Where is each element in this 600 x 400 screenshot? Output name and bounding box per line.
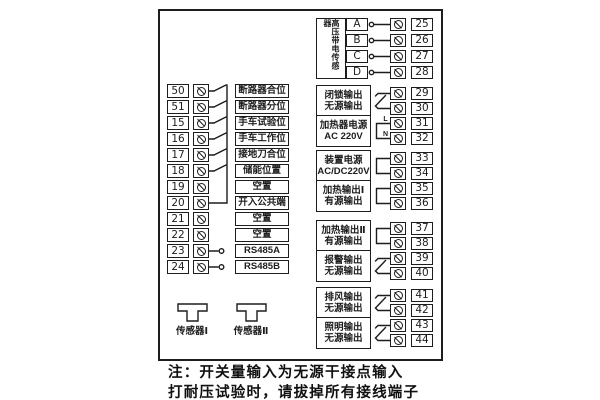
screw-terminal-icon [394, 68, 403, 77]
terminal-wiring-diagram: LN 注：开关量输入为无源干接点输入 打耐压试验时，请拔掉所有接线端子 50断路… [0, 0, 600, 400]
wire [376, 259, 391, 262]
terminal-number-box: 30 [411, 102, 433, 115]
wire-label-L: L [383, 116, 388, 123]
terminal-number-box: 29 [411, 87, 433, 100]
terminal-screw [390, 267, 406, 280]
screw-terminal-icon [197, 199, 206, 208]
screw-terminal-icon [394, 52, 403, 61]
terminal-number-box: 28 [411, 66, 433, 79]
terminal-number-box: 19 [167, 180, 189, 194]
hv-channel-box: D [346, 66, 368, 79]
terminal-screw [390, 222, 406, 235]
screw-terminal-icon [394, 134, 403, 143]
terminal-screw [193, 212, 209, 226]
connector-dot-icon [369, 54, 373, 58]
terminal-screw [390, 18, 406, 31]
output-label-box: 闭锁输出无源输出 [316, 85, 371, 117]
screw-terminal-icon [394, 184, 403, 193]
input-function-label: RS485A [235, 244, 289, 258]
screw-terminal-icon [394, 306, 403, 315]
wire [376, 338, 391, 341]
connector-dot-icon [369, 70, 373, 74]
terminal-screw [390, 102, 406, 115]
relay-contact-icon [376, 96, 386, 107]
terminal-number-box: 25 [411, 18, 433, 31]
terminal-number-box: 39 [411, 252, 433, 265]
terminal-screw [390, 66, 406, 79]
terminal-screw [390, 117, 406, 130]
terminal-number-box: 33 [411, 152, 433, 165]
terminal-screw [193, 196, 209, 210]
screw-terminal-icon [197, 263, 206, 272]
relay-contact-icon [376, 328, 386, 339]
wire [376, 271, 391, 274]
terminal-screw [390, 197, 406, 210]
hv-sensor-label: 高压带电传感器 [316, 18, 346, 79]
output-label-box: 加热输出Ⅱ有源输出 [316, 220, 371, 252]
sensor-connector-icon [178, 304, 207, 321]
switch-contact-icon [214, 101, 226, 107]
screw-terminal-icon [394, 321, 403, 330]
screw-terminal-icon [394, 336, 403, 345]
output-label-line: 排风输出 [324, 293, 362, 303]
terminal-screw [390, 289, 406, 302]
wire [376, 106, 391, 109]
output-label-line: AC 220V [324, 132, 363, 142]
terminal-screw [193, 260, 209, 274]
terminal-number-box: 20 [167, 196, 189, 210]
output-label-line: 闭锁输出 [324, 91, 362, 101]
output-label-line: AC/DC220V [317, 167, 369, 177]
screw-terminal-icon [394, 89, 403, 98]
input-function-label: RS485B [235, 260, 289, 274]
terminal-number-box: 36 [411, 197, 433, 210]
power-link-icon [377, 229, 391, 244]
wiring-layer: LN [0, 0, 600, 400]
screw-terminal-icon [394, 20, 403, 29]
terminal-number-box: 23 [167, 244, 189, 258]
screw-terminal-icon [394, 119, 403, 128]
relay-contact-icon [376, 298, 386, 309]
terminal-screw [193, 84, 209, 98]
switch-contact-icon [214, 85, 226, 91]
terminal-screw [193, 180, 209, 194]
terminal-screw [193, 164, 209, 178]
wire [376, 94, 391, 97]
output-label-box: 加热器电源AC 220V [316, 115, 371, 147]
note-line-1: 注：开关量输入为无源干接点输入 [168, 361, 404, 382]
terminal-screw [193, 132, 209, 146]
input-function-label: 手车工作位 [235, 132, 289, 146]
terminal-screw [390, 182, 406, 195]
wire [376, 308, 391, 311]
terminal-number-box: 16 [167, 132, 189, 146]
input-function-label: 储能位置 [235, 164, 289, 178]
power-link-icon [377, 189, 391, 204]
output-label-line: 有源输出 [324, 197, 362, 207]
screw-terminal-icon [394, 169, 403, 178]
screw-terminal-icon [394, 291, 403, 300]
wire [376, 296, 391, 299]
terminal-screw [390, 334, 406, 347]
terminal-screw [193, 148, 209, 162]
terminal-number-box: 51 [167, 100, 189, 114]
relay-contact-icon [376, 261, 386, 272]
switch-contact-icon [214, 133, 226, 139]
switch-contact-icon [214, 165, 226, 171]
output-label-line: 装置电源 [324, 156, 362, 166]
screw-terminal-icon [197, 247, 206, 256]
input-function-label: 手车试验位 [235, 116, 289, 130]
terminal-number-box: 18 [167, 164, 189, 178]
screw-terminal-icon [394, 104, 403, 113]
hv-channel-box: C [346, 50, 368, 63]
screw-terminal-icon [394, 154, 403, 163]
terminal-number-box: 26 [411, 34, 433, 47]
output-label-box: 照明输出无源输出 [316, 317, 371, 349]
output-label-box: 排风输出无源输出 [316, 287, 371, 319]
output-label-box: 报警输出无源输出 [316, 250, 371, 282]
output-label-box: 加热输出Ⅰ有源输出 [316, 180, 371, 212]
terminal-number-box: 41 [411, 289, 433, 302]
screw-terminal-icon [197, 87, 206, 96]
terminal-screw [390, 319, 406, 332]
terminal-number-box: 31 [411, 117, 433, 130]
screw-terminal-icon [394, 36, 403, 45]
input-function-label: 空置 [235, 180, 289, 194]
hv-channel-box: A [346, 18, 368, 31]
switch-contact-icon [214, 149, 226, 155]
terminal-screw [390, 237, 406, 250]
terminal-number-box: 22 [167, 228, 189, 242]
output-label-line: 无源输出 [324, 102, 362, 112]
terminal-screw [390, 87, 406, 100]
terminal-number-box: 37 [411, 222, 433, 235]
terminal-screw [390, 152, 406, 165]
terminal-number-box: 50 [167, 84, 189, 98]
screw-terminal-icon [197, 231, 206, 240]
connector-dot-icon [219, 265, 224, 270]
terminal-number-box: 40 [411, 267, 433, 280]
input-function-label: 空置 [235, 212, 289, 226]
screw-terminal-icon [394, 239, 403, 248]
screw-terminal-icon [197, 135, 206, 144]
screw-terminal-icon [394, 224, 403, 233]
terminal-screw [193, 228, 209, 242]
input-function-label: 开入公共端 [235, 196, 289, 210]
terminal-number-box: 21 [167, 212, 189, 226]
input-function-label: 空置 [235, 228, 289, 242]
output-label-line: 加热输出Ⅰ [323, 186, 365, 196]
screw-terminal-icon [394, 254, 403, 263]
terminal-number-box: 43 [411, 319, 433, 332]
terminal-number-box: 27 [411, 50, 433, 63]
output-label-line: 无源输出 [324, 267, 362, 277]
switch-contact-icon [214, 117, 226, 123]
connector-dot-icon [369, 38, 373, 42]
input-function-label: 断路器合位 [235, 84, 289, 98]
terminal-screw [193, 116, 209, 130]
terminal-screw [193, 244, 209, 258]
terminal-number-box: 17 [167, 148, 189, 162]
terminal-number-box: 35 [411, 182, 433, 195]
output-label-line: 加热输出Ⅱ [321, 226, 365, 236]
terminal-number-box: 24 [167, 260, 189, 274]
screw-terminal-icon [197, 215, 206, 224]
terminal-number-box: 32 [411, 132, 433, 145]
terminal-number-box: 44 [411, 334, 433, 347]
output-label-line: 报警输出 [324, 256, 362, 266]
terminal-screw [390, 50, 406, 63]
terminal-number-box: 15 [167, 116, 189, 130]
output-label-line: 照明输出 [324, 323, 362, 333]
terminal-screw [390, 304, 406, 317]
sensor-label: 传感器Ⅰ [164, 327, 220, 337]
terminal-screw [390, 132, 406, 145]
note-line-2: 打耐压试验时，请拔掉所有接线端子 [168, 381, 419, 400]
output-label-line: 加热器电源 [320, 121, 368, 131]
power-link-icon [377, 159, 391, 174]
terminal-screw [390, 167, 406, 180]
output-label-line: 无源输出 [324, 334, 362, 344]
screw-terminal-icon [394, 199, 403, 208]
screw-terminal-icon [197, 151, 206, 160]
screw-terminal-icon [197, 119, 206, 128]
terminal-number-box: 38 [411, 237, 433, 250]
wire [376, 326, 391, 329]
output-label-line: 有源输出 [324, 237, 362, 247]
screw-terminal-icon [197, 167, 206, 176]
screw-terminal-icon [394, 269, 403, 278]
screw-terminal-icon [197, 103, 206, 112]
terminal-screw [390, 252, 406, 265]
screw-terminal-icon [197, 183, 206, 192]
sensor-label: 传感器Ⅱ [223, 327, 279, 337]
terminal-number-box: 42 [411, 304, 433, 317]
output-label-box: 装置电源AC/DC220V [316, 150, 371, 182]
connector-dot-icon [219, 249, 224, 254]
wire-label-N: N [383, 131, 388, 138]
output-label-line: 无源输出 [324, 304, 362, 314]
terminal-screw [390, 34, 406, 47]
terminal-number-box: 34 [411, 167, 433, 180]
connector-dot-icon [369, 22, 373, 26]
input-function-label: 断路器分位 [235, 100, 289, 114]
hv-channel-box: B [346, 34, 368, 47]
input-function-label: 接地刀合位 [235, 148, 289, 162]
sensor-connector-icon [237, 304, 266, 321]
terminal-screw [193, 100, 209, 114]
